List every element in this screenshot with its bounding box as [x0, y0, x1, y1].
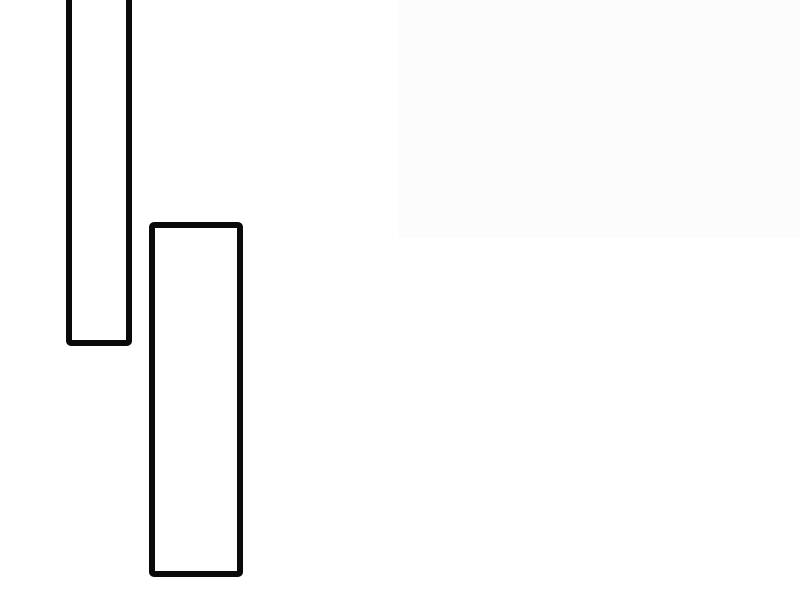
shaded-region — [399, 0, 800, 238]
page-background — [0, 0, 800, 600]
comic-panel-bottom — [149, 222, 243, 577]
comic-panel-top — [66, 0, 132, 346]
